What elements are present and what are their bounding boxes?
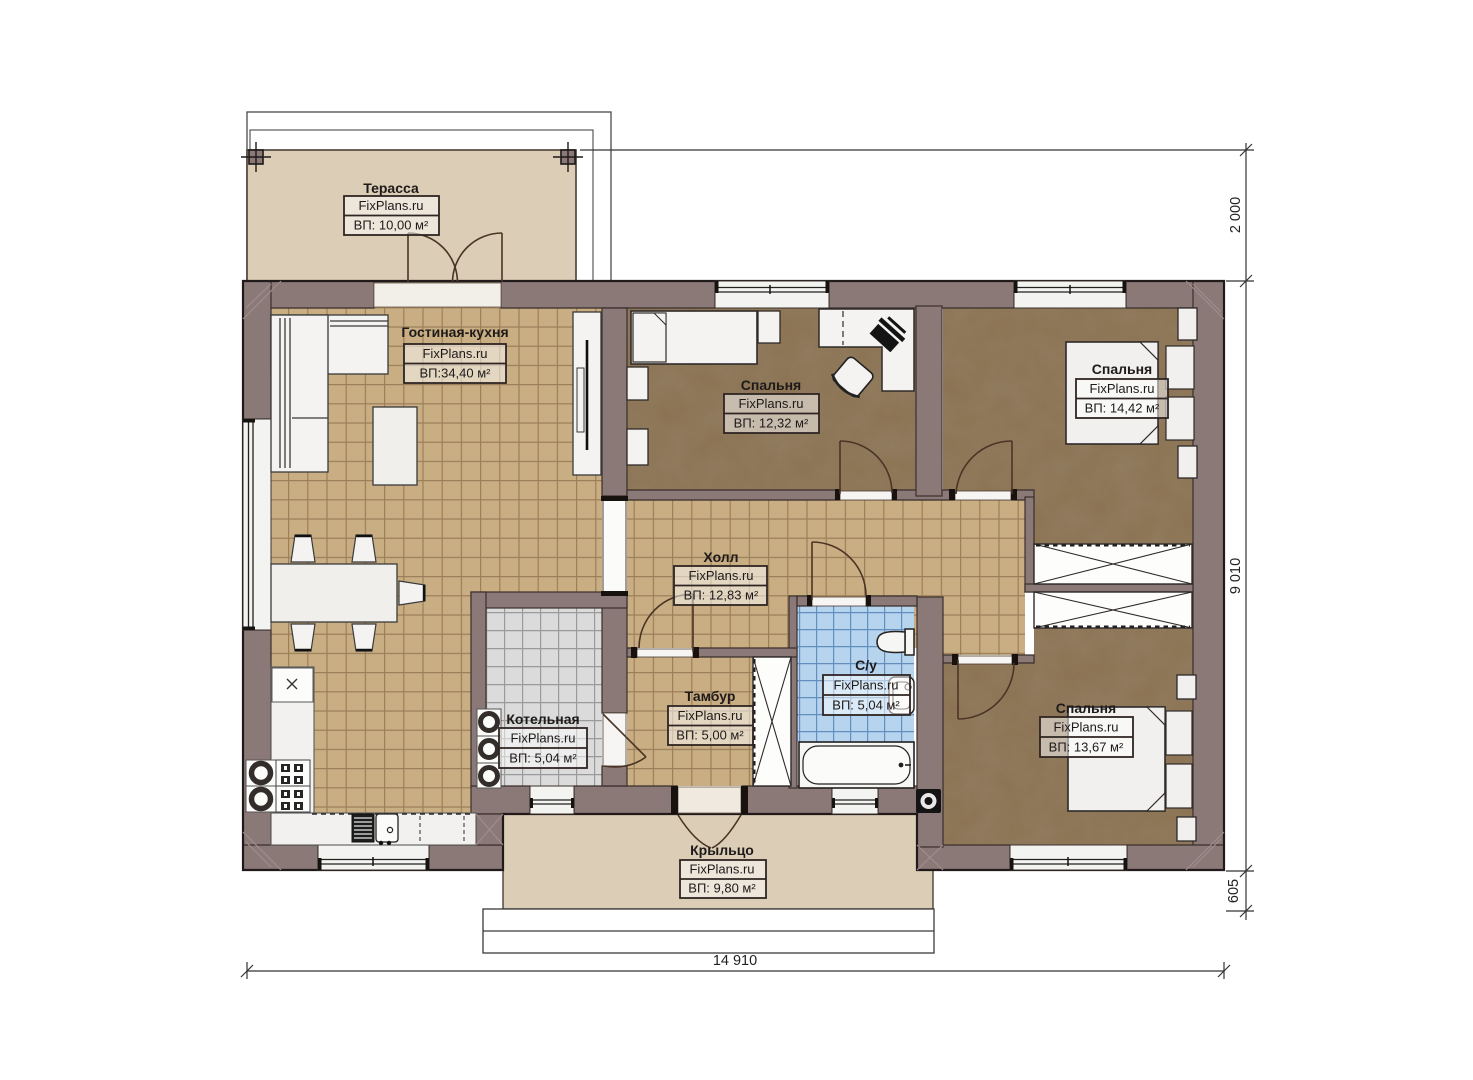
svg-text:ВП: 13,67 м²: ВП: 13,67 м²	[1049, 740, 1124, 755]
svg-text:ВП: 9,80 м²: ВП: 9,80 м²	[688, 881, 756, 896]
svg-text:Спальня: Спальня	[1056, 700, 1116, 716]
svg-text:ВП: 12,32 м²: ВП: 12,32 м²	[734, 416, 809, 431]
svg-text:FixPlans.ru: FixPlans.ru	[358, 198, 423, 213]
svg-text:С/у: С/у	[855, 657, 877, 673]
svg-text:ВП: 10,00 м²: ВП: 10,00 м²	[354, 218, 429, 233]
svg-text:14 910: 14 910	[713, 953, 757, 969]
svg-text:Терасса: Терасса	[363, 180, 419, 196]
svg-text:FixPlans.ru: FixPlans.ru	[688, 568, 753, 583]
svg-text:Гостиная-кухня: Гостиная-кухня	[401, 324, 508, 340]
svg-text:ВП: 5,04 м²: ВП: 5,04 м²	[832, 698, 900, 713]
svg-text:9 010: 9 010	[1228, 558, 1244, 594]
svg-text:FixPlans.ru: FixPlans.ru	[1089, 381, 1154, 396]
svg-text:605: 605	[1226, 879, 1242, 903]
svg-text:2 000: 2 000	[1228, 197, 1244, 233]
svg-text:FixPlans.ru: FixPlans.ru	[833, 678, 898, 693]
svg-text:Крыльцо: Крыльцо	[690, 842, 754, 858]
svg-text:FixPlans.ru: FixPlans.ru	[738, 396, 803, 411]
svg-text:ВП:34,40 м²: ВП:34,40 м²	[419, 366, 491, 381]
svg-text:Котельная: Котельная	[506, 711, 579, 727]
svg-text:FixPlans.ru: FixPlans.ru	[677, 708, 742, 723]
svg-text:Холл: Холл	[703, 549, 738, 565]
svg-text:FixPlans.ru: FixPlans.ru	[1053, 720, 1118, 735]
svg-text:ВП: 5,04 м²: ВП: 5,04 м²	[509, 751, 577, 766]
svg-text:Тамбур: Тамбур	[685, 688, 736, 704]
svg-text:FixPlans.ru: FixPlans.ru	[689, 862, 754, 877]
svg-text:Спальня: Спальня	[1092, 361, 1152, 377]
svg-text:FixPlans.ru: FixPlans.ru	[510, 731, 575, 746]
svg-text:ВП: 5,00 м²: ВП: 5,00 м²	[676, 728, 744, 743]
svg-text:ВП: 12,83 м²: ВП: 12,83 м²	[684, 588, 759, 603]
svg-text:ВП: 14,42 м²: ВП: 14,42 м²	[1085, 401, 1160, 416]
svg-text:FixPlans.ru: FixPlans.ru	[422, 346, 487, 361]
svg-text:Спальня: Спальня	[741, 377, 801, 393]
